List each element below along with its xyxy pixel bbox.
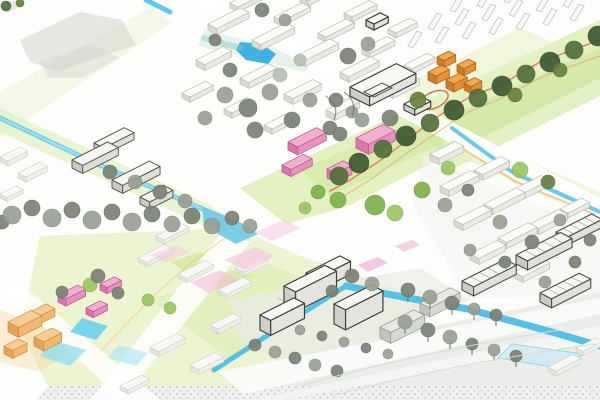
tree <box>64 202 80 218</box>
tree <box>361 37 375 51</box>
tree <box>441 161 455 175</box>
tree <box>490 309 502 321</box>
tree <box>414 182 430 198</box>
tree <box>499 256 511 268</box>
tree <box>383 349 393 359</box>
tree <box>569 256 581 268</box>
tree <box>387 205 403 221</box>
tree <box>508 88 522 102</box>
tree <box>444 100 464 120</box>
tree <box>24 200 40 216</box>
tree <box>401 283 415 297</box>
tree <box>284 112 300 128</box>
tree <box>217 87 233 103</box>
tree <box>91 269 105 283</box>
tree <box>184 208 200 224</box>
tree <box>255 3 269 17</box>
tree <box>239 99 257 117</box>
tree <box>355 113 369 127</box>
tree <box>462 184 474 196</box>
tree <box>198 111 212 125</box>
tree <box>294 54 306 66</box>
tree <box>584 234 596 246</box>
tree <box>103 165 117 179</box>
tree <box>365 277 379 291</box>
tree <box>445 296 459 310</box>
tree <box>295 325 305 335</box>
tree <box>340 48 356 64</box>
tree <box>164 216 180 232</box>
tree <box>468 303 480 315</box>
tree <box>223 63 237 77</box>
tree <box>112 287 124 299</box>
tree <box>104 204 120 220</box>
tree <box>289 352 301 364</box>
tree <box>554 214 566 226</box>
tree <box>247 122 263 138</box>
tree <box>398 315 412 329</box>
tree <box>273 68 287 82</box>
tree <box>178 194 192 208</box>
tree <box>382 110 398 126</box>
tree <box>517 65 535 83</box>
tree <box>541 175 555 189</box>
tree <box>309 359 321 371</box>
tree <box>3 206 21 224</box>
tree <box>469 89 487 107</box>
tree <box>144 206 160 222</box>
tree <box>410 92 426 108</box>
tree <box>299 202 311 214</box>
tree <box>365 195 385 215</box>
tree <box>243 219 257 233</box>
tree <box>421 323 435 337</box>
tree <box>525 235 539 249</box>
tree <box>311 185 325 199</box>
tree <box>330 167 348 185</box>
masterplan-canvas <box>0 0 600 400</box>
tree <box>361 343 371 353</box>
render-root <box>0 0 600 400</box>
tree <box>339 337 349 347</box>
tree <box>349 153 369 173</box>
tree <box>374 140 392 158</box>
tree <box>164 302 176 314</box>
tree <box>142 294 154 306</box>
tree <box>153 185 167 199</box>
tree <box>488 344 500 356</box>
tree <box>249 339 261 351</box>
tree <box>123 213 141 231</box>
tree <box>333 127 347 141</box>
tree <box>204 218 220 234</box>
tree <box>1 1 11 11</box>
tree <box>565 41 583 59</box>
tree <box>423 290 437 304</box>
tree <box>317 331 327 341</box>
tree <box>345 269 359 283</box>
tree <box>262 84 278 100</box>
tree <box>464 244 476 256</box>
tree <box>83 211 101 229</box>
tree <box>326 285 338 297</box>
tree <box>279 14 291 26</box>
tree <box>303 93 317 107</box>
tree <box>553 63 567 77</box>
isometric-masterplan-illustration <box>0 0 600 400</box>
tree <box>330 192 346 208</box>
tree <box>443 330 457 344</box>
tree <box>493 215 507 229</box>
tree <box>396 126 416 146</box>
tree <box>539 276 551 288</box>
tree <box>438 198 452 212</box>
tree <box>466 338 478 350</box>
tree <box>225 211 239 225</box>
tree <box>209 34 221 46</box>
tree <box>512 162 528 178</box>
tree <box>421 114 439 132</box>
tree <box>269 346 281 358</box>
tree <box>128 175 142 189</box>
tree <box>43 209 61 227</box>
tree <box>16 0 24 7</box>
tree <box>56 286 68 298</box>
